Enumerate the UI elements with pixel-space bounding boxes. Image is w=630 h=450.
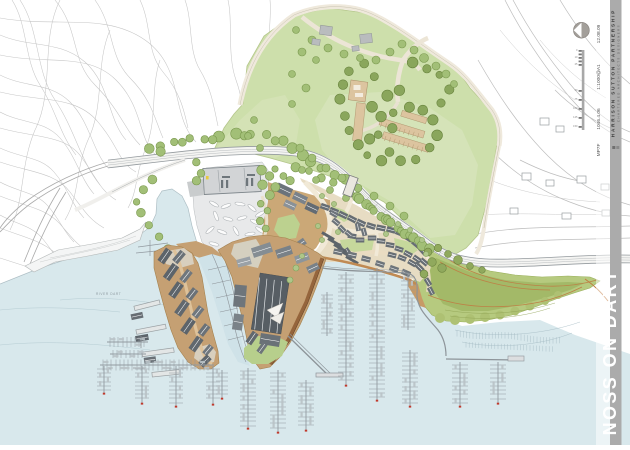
- svg-text:100: 100: [573, 106, 578, 110]
- svg-text:MP7F: MP7F: [596, 144, 602, 157]
- svg-text:1:1000@A1: 1:1000@A1: [596, 64, 602, 90]
- svg-text:NOSS ON DART: NOSS ON DART: [600, 269, 620, 436]
- svg-text:1046.4.06: 1046.4.06: [596, 108, 602, 130]
- svg-text:125: 125: [573, 115, 578, 119]
- svg-text:CHARTERED ARCHITECTS DESIGNERS: CHARTERED ARCHITECTS DESIGNERS: [616, 24, 620, 122]
- svg-text:12.08.09: 12.08.09: [596, 24, 602, 43]
- svg-text:150: 150: [573, 124, 578, 128]
- svg-text:RIVER DART: RIVER DART: [96, 292, 121, 296]
- svg-text:HARRISON SUTTON PARTNERSHIP: HARRISON SUTTON PARTNERSHIP: [611, 9, 616, 137]
